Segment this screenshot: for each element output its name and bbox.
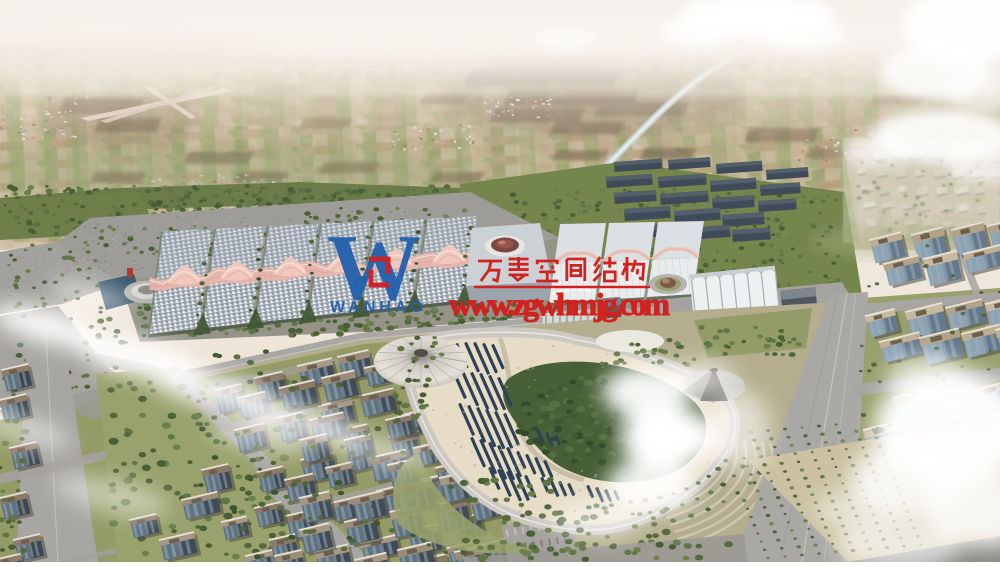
svg-text:www.zgwhmjg.com: www.zgwhmjg.com (449, 286, 670, 322)
